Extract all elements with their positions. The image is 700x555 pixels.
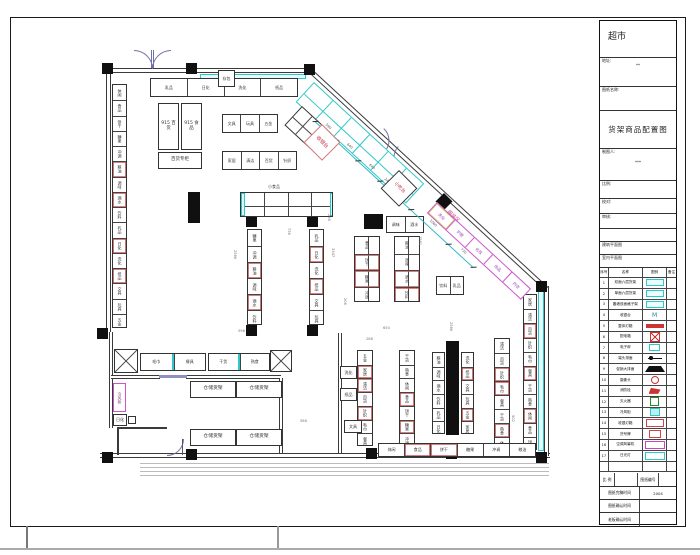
check-row: 校对: [600,199,676,214]
legend-symbol [643,408,667,418]
gondola-run: 清洁百货针织毛巾餐具干货熟食休闲 [494,338,510,450]
shelf-cell: 糖果 [457,444,483,456]
drawing-no-value [659,473,676,486]
end-cap [400,350,414,351]
crossed-block [114,349,138,373]
shelf-segment: 饼干 [400,406,414,420]
shelf-segment: 干货 [524,380,536,394]
shelf-segment: 干货 [495,409,509,423]
drafter-value: *** [600,160,676,165]
shelf-block: 纸品 [340,388,357,401]
legend-cell: 3 [600,300,609,310]
project-name: 超市 [600,21,676,58]
column [307,325,318,336]
gondola-run: 洗化纸品文具玩具五金家居 [461,352,474,434]
legend-cell [667,429,676,439]
legend-row: 17日光灯 [600,451,676,462]
shelf-segment: 粮油 [113,161,126,176]
shelf-segment: 糖果 [113,131,126,146]
legend-cell: 日光灯 [609,451,643,461]
interior-plan-label: 室内平面图 [600,255,676,260]
shelf-segment: 玩具 [462,394,473,408]
shelf-cell: 五金 [259,115,277,132]
shelf-segment: 饮料 [248,310,261,325]
shelf-segment: 饼干 [113,116,126,131]
shelf-segment: 纸品 [310,278,323,294]
shelf-segment: 五金 [358,351,372,365]
check-label: 校对: [600,199,676,204]
wall [186,375,281,379]
shelf-block: 日化 [113,414,127,426]
legend-cell: 8 [600,354,609,364]
plan-text: 2586 [448,322,452,331]
scale-label: 比例: [600,181,676,186]
shelf-cell: 纸品 [260,79,297,96]
storage-shelf: 仓储货架 [190,381,236,398]
audit-label: 审核: [600,214,676,219]
shelf-segment: 休闲 [524,408,536,422]
shelf-segment: 毛巾 [524,352,536,366]
shelf-row: 调味酒水 [386,216,424,233]
legend-row: 9促销大排面 [600,364,676,375]
shelf-segment: 餐具 [358,433,372,446]
shelf-segment: 乳品 [310,230,323,246]
shelf-row: 文具玩具五金 [222,114,278,133]
legend-symbol [643,364,667,374]
legend-symbol [643,289,667,299]
legend-cell: 15 [600,429,609,439]
shelf-segment: 纸品 [113,268,126,283]
shelf-cell: 乳品 [450,277,464,294]
plan-text: 3347 [330,248,334,257]
drawing-sheet: 休闲食品饼干糖果冲调粮油调味酒水饮料乳品日化洗化纸品文具玩具五金家居清洁百货针织… [0,0,700,555]
drawing-no-label: 图纸编号 [638,473,659,486]
plan-text: 586 [300,420,307,424]
column [366,448,377,459]
shelf-segment: 洗化 [113,253,126,268]
address-row: 地址: ** [600,58,676,87]
legend-cell: 货号牌 [609,429,643,439]
shelf-cell: 熟食 [240,354,270,370]
shelf-row: 休闲食品饼干糖果冲调粮油 [378,443,536,457]
shelf-segment: 毛巾 [495,381,509,395]
legend-symbol [643,386,667,396]
legend-row: 10摄像头 [600,375,676,386]
legend-row: 6配电箱 [600,332,676,343]
legend-cell: 整体灯箱 [609,321,643,331]
legend-cell: 17 [600,451,609,461]
shelf-segment: 洗化 [462,353,473,367]
legend-row: 1双面六层货架 [600,278,676,289]
boss-time-label: 老板确认时间 [600,513,640,526]
pavement-hatch [140,463,549,476]
legend-symbol [643,278,667,288]
end-cap [358,350,372,351]
gondola-run: 家居清洁百货针织毛巾餐具干货熟食休闲食品饼干 [523,294,537,450]
shelf-block: 存包 [218,70,235,87]
wall [111,375,160,379]
shelf-segment: 餐具 [524,366,536,380]
legend-row: 3靠墙双面格子架 [600,300,676,311]
plan-text: 650 [383,327,390,331]
legend-row: 2单面六层货架 [600,289,676,300]
legend-cell: 单面六层货架 [609,289,643,299]
shelf-segment: 清洁 [495,339,509,353]
double-gondola: 粮油调味酒水饮料 [394,236,420,302]
storage-shelf: 仓储货架 [236,381,282,398]
legend-cell: 配电箱 [609,332,643,342]
legend-symbol [643,429,667,439]
legend-cell: 1 [600,278,609,288]
legend-cell [667,451,676,461]
shelf-segment: 冲调 [113,146,126,161]
legend-row: 15货号牌 [600,429,676,440]
shelf-cell: 饮料 [437,277,450,294]
column [536,452,547,463]
legend-cell: 6 [600,332,609,342]
shelf-block: 冷风柜 [113,383,126,412]
confirm-time-row: 图纸确认时间 [600,500,676,513]
shelf-cell: 饼干 [430,444,456,456]
column [153,50,154,68]
legend-row: 14收银灯箱 [600,418,676,429]
door-threshold [159,375,187,378]
done-time-label: 图纸完稿时间 [600,487,640,499]
gondola-run: 干货熟食休闲食品饼干糖果冲调 [399,350,415,446]
shelf-cell: 粮油 [509,444,535,456]
legend-row: 13冷风柜 [600,408,676,419]
storage-shelf: 仓储货架 [190,429,236,446]
shelf-segment: 日化 [113,238,126,253]
shelf-segment: 针织 [495,367,509,381]
shelf-cell: 冲调 [483,444,509,456]
column [246,325,257,336]
done-time-value: 2004 [640,487,676,499]
legend-symbol [643,397,667,407]
legend-cell [667,408,676,418]
legend-cell [667,397,676,407]
legend-cell: 12 [600,397,609,407]
legend-cell [667,321,676,331]
arch-plan-label: 建筑平面图 [600,242,676,247]
legend-cell: 消防栓 [609,386,643,396]
legend-cell: 4 [600,310,609,320]
shelf-segment: 百货 [495,353,509,367]
shelf-segment: 乳品 [113,222,126,237]
shelf-segment: 文具 [462,380,473,394]
drawing-title: 货架商品配置图 [600,111,676,149]
shelf-cell: 干货 [209,354,240,370]
column [304,64,315,75]
legend-symbol [643,418,667,428]
legend-cell: 灭火器 [609,397,643,407]
shelf-segment: 百货 [524,323,536,337]
legend-symbol [643,451,667,461]
shelf-segment: 乳品 [433,408,444,422]
legend-row: 4收银台M [600,310,676,321]
shelf-segment: 粮油 [433,353,444,367]
drafter-label: 制图人: [600,149,676,154]
shelf-segment: 针织 [524,338,536,352]
shelf-cell: 毛巾 [141,354,174,370]
shelf-cell: 餐具 [174,354,206,370]
legend-cell: 13 [600,408,609,418]
column [246,216,257,227]
legend-cell [667,418,676,428]
shelf-segment: 休闲 [113,85,126,100]
legend-cell: 5 [600,321,609,331]
shelf-segment: 食品 [524,423,536,437]
legend-row: 11消防栓 [600,386,676,397]
shelf-cell: 百货 [259,152,278,169]
legend-symbol [643,375,667,385]
shelf-block [128,416,136,424]
legend-cell: 双面六层货架 [609,278,643,288]
legend-cell: 16 [600,440,609,450]
legend-cell: 端头排面 [609,354,643,364]
shelf-block: 915 食品 [181,103,202,150]
legend-symbol [643,440,667,450]
shelf-segment: 日化 [310,246,323,262]
legend-cell [667,364,676,374]
legend-cell: 11 [600,386,609,396]
legend-row: 8端头排面 [600,354,676,365]
boss-time-row: 老板确认时间 [600,513,676,526]
legend-row [600,462,676,473]
interior-plan-row: 室内平面图 [600,255,676,268]
shelf-segment: 熟食 [495,423,509,437]
shelf-cell: 清洁 [241,152,260,169]
arch-plan-row: 建筑平面图 [600,242,676,255]
shelf-segment: 休闲 [400,378,414,392]
shelf-segment: 家居 [462,421,473,434]
legend-cell [667,462,676,472]
shelf-segment: 餐具 [495,395,509,409]
door-arc [152,50,171,69]
confirm-time-label: 图纸确认时间 [600,500,640,512]
footer-scale-value [615,473,638,486]
shelf-cell: 休闲 [379,444,404,456]
legend-cell [667,300,676,310]
shelf-segment: 食品 [400,392,414,406]
legend-symbol: M [643,310,667,320]
shelf-segment: 文具 [310,294,323,310]
shelf-cell: 文具 [223,115,240,132]
legend-cell: 收银灯箱 [609,418,643,428]
legend-cell [667,386,676,396]
shelf-block: 文具 [344,420,362,433]
audit-row: 审核: [600,214,676,229]
wall [544,286,549,456]
wall [117,429,119,455]
shelf-segment: 纸品 [462,367,473,381]
end-cap [495,338,509,339]
shelf-row: 毛巾餐具 [140,353,206,371]
shelf-grid [240,192,333,217]
legend-cell: 10 [600,375,609,385]
shelf-segment: 针织 [358,406,372,420]
double-gondola: 食品饼干糖果冲调 [354,236,380,302]
legend-symbol [643,343,667,353]
plan-text: 596 [238,330,245,334]
column [102,452,113,463]
legend-symbol [643,354,667,364]
shelf-segment: 熟食 [400,365,414,379]
legend-cell [667,343,676,353]
legend-cell [609,462,643,472]
footer-scale-label: 比 例 [600,473,615,486]
shelf-cell: 针织 [278,152,297,169]
column [186,63,197,74]
legend-cell [600,462,609,472]
legend-header: 图例 [643,268,667,277]
storage-shelf: 仓储货架 [236,429,282,446]
drafter-row: 制图人: *** [600,149,676,181]
plan-text: 286 [366,338,373,342]
end-platform [364,214,383,229]
legend-cell: 2 [600,289,609,299]
shelf-segment: 百货 [358,392,372,406]
footer-scale-row: 比 例 图纸编号 [600,473,676,487]
legend-cell: 靠墙双面格子架 [609,300,643,310]
shelf-segment: 调味 [248,278,261,294]
crossed-block [270,350,292,372]
legend-symbol [643,321,667,331]
drawing-name-row: 图纸名称: [600,87,676,111]
shelf-segment: 玩具 [310,310,323,325]
legend-row: 5整体灯箱 [600,321,676,332]
shelf-row: 家居清洁百货针织 [222,151,297,170]
column [102,63,113,74]
gondola-run: 粮油调味酒水饮料乳品日化 [432,352,445,434]
shelf-segment: 酒水 [248,294,261,310]
shelf-cell: 家居 [223,152,241,169]
legend-symbol [643,332,667,342]
boss-time-value [640,513,676,526]
shelf-cell: 调味 [387,217,405,232]
legend-symbol [643,300,667,310]
confirm-time-value [640,500,676,512]
plan-text: 1581 [417,236,421,245]
legend-cell [667,332,676,342]
column [97,328,108,339]
shelf-segment: 粮油 [248,262,261,278]
shelf-segment: 清洁 [358,378,372,392]
column [307,216,318,227]
plan-text: 小食品 [268,185,280,189]
column [186,449,197,460]
legend-cell: 7 [600,343,609,353]
empty-row [600,229,676,242]
scale-row: 比例: [600,181,676,199]
legend-cell: 空调风幕机 [609,440,643,450]
black-bar [446,341,459,435]
shelf-segment: 糖果 [248,230,261,246]
done-time-row: 图纸完稿时间 2004 [600,487,676,500]
shelf-segment: 洗化 [310,262,323,278]
legend-cell: 摄像头 [609,375,643,385]
drawing-name-label: 图纸名称: [600,87,676,92]
shelf-row: 饮料乳品 [436,276,464,295]
wall-shelf-strip [538,290,544,451]
wall [106,70,111,332]
shelf-segment: 玩具 [113,299,126,314]
end-cap [113,84,126,85]
legend-row: 12灭火器 [600,397,676,408]
legend-symbol [643,462,667,472]
legend-cell [667,440,676,450]
shelf-block: 百货专柜 [158,152,202,169]
shelf-segment: 糖果 [400,420,414,434]
legend-header: 备注 [667,268,676,277]
legend-cell [667,278,676,288]
gondola-run: 休闲食品饼干糖果冲调粮油调味酒水饮料乳品日化洗化纸品文具玩具五金 [112,84,127,328]
column [151,50,152,68]
shelf-segment: 酒水 [433,380,444,394]
legend-header: 序号 [600,268,609,277]
legend-cell [667,289,676,299]
plan-text: 2586 [232,250,236,259]
shelf-segment: 家居 [358,365,372,379]
shelf-cell: 食品 [404,444,430,456]
legend-cell [667,354,676,364]
shelf-cell: 玩具 [240,115,258,132]
legend-cell [667,310,676,320]
shelf-segment: 文具 [113,283,126,298]
shelf-segment: 熟食 [524,394,536,408]
shelf-segment: 干货 [400,351,414,365]
shelf-block: 洗化 [340,366,357,379]
plan-text: 206 [342,298,346,305]
shelf-segment: 酒水 [113,192,126,207]
shelf-segment: 清洁 [524,309,536,323]
plan-text: 736 [286,228,290,235]
diagonal-wall [309,69,549,291]
address-value: ** [600,63,676,68]
legend-cell: 电子秤 [609,343,643,353]
column [182,439,183,455]
legend-cell: 促销大排面 [609,364,643,374]
shelf-segment: 调味 [113,177,126,192]
legend-header: 名称 [609,268,643,277]
shelf-segment: 食品 [113,100,126,115]
shelf-segment: 饮料 [113,207,126,222]
legend-cell: 冷风柜 [609,408,643,418]
shelf-segment: 饮料 [433,394,444,408]
black-bar [188,192,200,223]
plan-text: 296 [326,214,330,221]
legend-row: 7电子秤 [600,343,676,354]
shelf-cell: 乳品 [151,79,187,96]
column [536,281,547,292]
title-block: 超市 地址: ** 图纸名称: 货架商品配置图 制图人: *** 比例: 校对:… [599,20,677,525]
plan-text: 902 [510,415,514,422]
gondola-run: 乳品日化洗化纸品文具玩具 [309,229,324,325]
legend-row: 16空调风幕机 [600,440,676,451]
shelf-block: 915 百货 [158,103,179,150]
wall [117,427,167,429]
shelf-segment: 冲调 [248,246,261,262]
shelf-segment: 家居 [524,295,536,309]
shelf-segment: 五金 [113,314,126,328]
gondola-run: 糖果冲调粮油调味酒水饮料 [247,229,262,325]
legend-cell: 14 [600,418,609,428]
legend-cell: 收银台 [609,310,643,320]
legend-table: 序号名称图例备注1双面六层货架2单面六层货架3靠墙双面格子架4收银台M5整体灯箱… [600,268,676,472]
shelf-segment: 调味 [433,367,444,381]
shelf-segment: 五金 [462,408,473,422]
floor-plan: 休闲食品饼干糖果冲调粮油调味酒水饮料乳品日化洗化纸品文具玩具五金家居清洁百货针织… [0,0,700,555]
